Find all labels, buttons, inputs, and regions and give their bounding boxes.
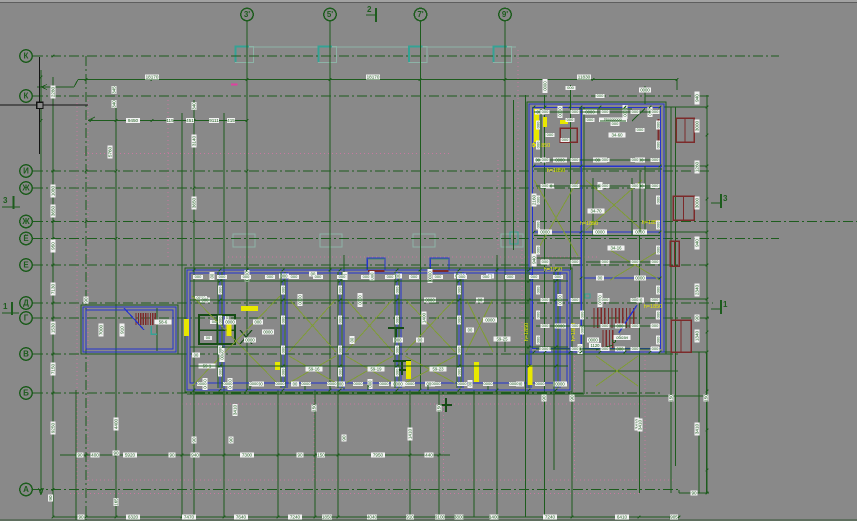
svg-text:165: 165 <box>114 498 119 506</box>
svg-text:0000: 0000 <box>354 381 364 386</box>
svg-text:000: 000 <box>218 316 223 323</box>
svg-text:58-6: 58-6 <box>159 320 168 325</box>
svg-text:000: 000 <box>395 337 403 342</box>
svg-text:0000: 0000 <box>540 229 550 234</box>
svg-text:000: 000 <box>656 246 661 253</box>
svg-text:h=1850: h=1850 <box>544 267 563 273</box>
svg-text:000: 000 <box>536 246 541 253</box>
svg-text:000: 000 <box>281 286 286 293</box>
svg-text:000: 000 <box>572 297 579 302</box>
svg-text:150: 150 <box>669 394 674 402</box>
svg-text:34-16: 34-16 <box>611 246 623 251</box>
svg-text:000: 000 <box>291 274 298 279</box>
svg-text:000: 000 <box>542 297 549 302</box>
svg-text:7640: 7640 <box>236 515 247 520</box>
svg-text:000: 000 <box>395 368 400 375</box>
svg-text:3650: 3650 <box>192 197 197 208</box>
svg-text:000: 000 <box>656 221 661 228</box>
svg-text:940: 940 <box>695 94 700 102</box>
svg-text:0000: 0000 <box>245 337 255 342</box>
svg-text:000: 000 <box>572 109 579 114</box>
svg-text:Д: Д <box>23 299 29 308</box>
svg-text:И: И <box>23 167 29 176</box>
svg-text:000: 000 <box>536 311 541 318</box>
svg-text:00: 00 <box>418 337 423 342</box>
svg-text:345: 345 <box>112 86 117 94</box>
svg-text:9100: 9100 <box>435 515 446 520</box>
svg-text:7130: 7130 <box>51 283 56 294</box>
svg-text:4400: 4400 <box>114 418 119 429</box>
svg-text:9250: 9250 <box>51 422 56 433</box>
svg-text:3410: 3410 <box>695 423 700 434</box>
svg-text:000: 000 <box>602 109 609 114</box>
svg-text:00: 00 <box>598 275 603 280</box>
svg-text:5': 5' <box>327 10 333 19</box>
svg-text:0000: 0000 <box>224 381 234 386</box>
svg-text:34-60: 34-60 <box>612 133 624 138</box>
svg-text:340: 340 <box>112 100 117 108</box>
svg-text:000: 000 <box>507 274 514 279</box>
svg-text:000: 000 <box>632 183 639 188</box>
svg-text:0000: 0000 <box>276 381 286 386</box>
svg-text:000: 000 <box>338 316 343 323</box>
svg-text:000: 000 <box>632 346 639 351</box>
svg-text:1: 1 <box>3 302 8 311</box>
svg-text:00: 00 <box>293 381 298 386</box>
svg-text:Ж: Ж <box>21 217 30 226</box>
svg-text:0000: 0000 <box>406 381 416 386</box>
svg-text:940: 940 <box>695 239 700 247</box>
svg-text:000: 000 <box>315 274 322 279</box>
svg-text:2: 2 <box>367 5 372 14</box>
svg-text:90: 90 <box>342 435 347 441</box>
svg-text:90: 90 <box>297 453 303 458</box>
svg-text:150: 150 <box>312 404 317 412</box>
svg-text:910: 910 <box>120 326 125 334</box>
svg-text:0000: 0000 <box>428 271 433 281</box>
svg-text:000: 000 <box>536 141 541 148</box>
svg-text:000: 000 <box>395 286 400 293</box>
svg-text:000: 000 <box>597 93 604 98</box>
svg-text:000: 000 <box>572 157 579 162</box>
svg-text:451: 451 <box>186 118 194 123</box>
svg-text:000: 000 <box>632 259 639 264</box>
svg-text:000: 000 <box>542 157 549 162</box>
svg-text:3000: 3000 <box>695 197 700 208</box>
svg-text:000: 000 <box>602 259 609 264</box>
svg-text:000: 000 <box>255 319 263 324</box>
svg-text:000: 000 <box>652 346 659 351</box>
svg-text:59-25: 59-25 <box>497 337 509 342</box>
svg-text:7240: 7240 <box>545 515 556 520</box>
svg-text:1410: 1410 <box>408 428 413 439</box>
svg-text:000: 000 <box>542 259 549 264</box>
svg-text:0000: 0000 <box>485 317 495 322</box>
svg-text:3: 3 <box>3 196 8 205</box>
svg-text:000: 000 <box>656 311 661 318</box>
svg-text:11830: 11830 <box>578 75 591 80</box>
svg-text:3: 3 <box>723 194 728 203</box>
svg-text:000: 000 <box>542 323 549 328</box>
svg-text:0000: 0000 <box>432 381 442 386</box>
svg-text:90: 90 <box>78 515 84 520</box>
svg-text:1400: 1400 <box>489 515 500 520</box>
svg-text:910: 910 <box>406 515 414 520</box>
svg-text:000: 000 <box>267 274 274 279</box>
svg-text:000: 000 <box>531 274 538 279</box>
svg-text:950: 950 <box>51 242 56 250</box>
svg-text:Г: Г <box>24 314 29 323</box>
svg-text:3650: 3650 <box>51 205 56 216</box>
svg-text:000: 000 <box>218 346 223 353</box>
svg-text:940: 940 <box>191 453 199 458</box>
svg-text:0000: 0000 <box>640 87 650 92</box>
svg-text:0000: 0000 <box>198 381 208 386</box>
svg-text:000: 000 <box>652 259 659 264</box>
svg-text:000: 000 <box>652 157 659 162</box>
svg-text:00: 00 <box>194 352 199 357</box>
svg-text:7470: 7470 <box>184 515 195 520</box>
svg-text:940: 940 <box>532 256 537 264</box>
svg-text:0000: 0000 <box>250 381 260 386</box>
svg-text:0000: 0000 <box>595 229 605 234</box>
svg-text:7': 7' <box>417 10 423 19</box>
svg-text:59-23: 59-23 <box>433 367 445 372</box>
svg-text:000: 000 <box>435 274 442 279</box>
svg-text:90: 90 <box>695 315 700 321</box>
svg-text:0000: 0000 <box>263 329 273 334</box>
svg-text:00: 00 <box>206 335 211 340</box>
svg-text:000: 000 <box>652 323 659 328</box>
svg-text:000: 000 <box>632 323 639 328</box>
svg-text:1260: 1260 <box>695 161 700 172</box>
svg-text:2280: 2280 <box>51 86 56 97</box>
svg-text:0000: 0000 <box>302 381 312 386</box>
svg-text:1530: 1530 <box>51 322 56 333</box>
svg-text:000: 000 <box>395 316 400 323</box>
svg-text:000: 000 <box>281 273 289 278</box>
svg-text:000: 000 <box>339 274 346 279</box>
svg-text:000: 000 <box>457 286 462 293</box>
svg-text:000: 000 <box>602 157 609 162</box>
svg-text:9': 9' <box>502 10 508 19</box>
svg-text:000: 000 <box>656 336 661 343</box>
svg-text:3': 3' <box>244 10 250 19</box>
svg-text:0000: 0000 <box>536 381 546 386</box>
svg-text:000: 000 <box>536 196 541 203</box>
svg-text:000: 000 <box>395 346 400 353</box>
svg-text:3800: 3800 <box>454 515 465 520</box>
svg-text:000: 000 <box>602 323 609 328</box>
svg-text:А: А <box>23 485 29 494</box>
svg-text:6320: 6320 <box>128 515 139 520</box>
svg-text:90: 90 <box>84 297 89 303</box>
svg-text:000: 000 <box>387 274 394 279</box>
svg-text:5760: 5760 <box>108 146 113 157</box>
svg-text:000: 000 <box>411 274 418 279</box>
svg-text:Б: Б <box>23 389 29 398</box>
svg-text:90: 90 <box>542 395 547 401</box>
svg-text:000: 000 <box>338 346 343 353</box>
svg-text:1: 1 <box>723 300 728 309</box>
svg-text:000: 000 <box>656 286 661 293</box>
svg-text:h=1850: h=1850 <box>644 304 663 310</box>
svg-text:000: 000 <box>632 109 639 114</box>
svg-text:1120: 1120 <box>590 343 600 348</box>
svg-text:00: 00 <box>468 327 473 332</box>
svg-text:1080: 1080 <box>51 185 56 196</box>
svg-text:Е: Е <box>23 261 29 270</box>
svg-text:2340: 2340 <box>695 284 700 295</box>
svg-text:h=1850: h=1850 <box>580 221 599 227</box>
svg-text:1340: 1340 <box>695 330 700 341</box>
svg-text:90: 90 <box>77 453 83 458</box>
svg-text:000: 000 <box>572 183 579 188</box>
svg-text:000: 000 <box>580 326 585 333</box>
svg-text:000: 000 <box>656 141 661 148</box>
svg-text:000: 000 <box>602 297 609 302</box>
svg-text:6410: 6410 <box>617 515 628 520</box>
svg-text:3000: 3000 <box>695 120 700 131</box>
svg-text:000: 000 <box>612 121 619 126</box>
svg-text:Ё: Ё <box>23 234 29 243</box>
svg-text:000: 000 <box>457 346 462 353</box>
svg-text:90: 90 <box>169 453 175 458</box>
svg-text:5920: 5920 <box>125 453 136 458</box>
svg-text:150: 150 <box>317 453 325 458</box>
svg-text:000: 000 <box>567 85 574 90</box>
svg-text:000: 000 <box>195 274 202 279</box>
svg-text:000: 000 <box>281 368 286 375</box>
svg-text:00: 00 <box>468 381 473 386</box>
svg-text:3410: 3410 <box>233 404 238 415</box>
svg-text:0000: 0000 <box>380 381 390 386</box>
svg-text:000: 000 <box>243 274 250 279</box>
svg-text:150: 150 <box>704 394 709 402</box>
svg-text:90: 90 <box>570 395 575 401</box>
svg-text:9450: 9450 <box>128 118 139 123</box>
svg-text:18170: 18170 <box>146 75 159 80</box>
svg-text:115: 115 <box>166 118 174 123</box>
svg-text:000: 000 <box>652 109 659 114</box>
svg-text:4040: 4040 <box>367 515 378 520</box>
svg-text:000: 000 <box>457 368 462 375</box>
svg-text:00: 00 <box>350 337 355 342</box>
svg-text:440: 440 <box>425 453 433 458</box>
svg-text:0000: 0000 <box>543 81 548 91</box>
svg-text:000: 000 <box>219 274 226 279</box>
svg-text:000: 000 <box>459 274 466 279</box>
svg-text:обозн: обозн <box>616 335 628 340</box>
svg-text:0000: 0000 <box>588 337 598 342</box>
svg-text:000: 000 <box>632 297 639 302</box>
svg-text:000: 000 <box>652 297 659 302</box>
svg-text:К: К <box>24 52 29 61</box>
svg-text:0000: 0000 <box>484 381 494 386</box>
svg-text:000: 000 <box>652 183 659 188</box>
svg-text:000: 000 <box>536 286 541 293</box>
svg-text:340: 340 <box>192 102 197 110</box>
svg-text:59-16: 59-16 <box>309 367 321 372</box>
svg-text:150: 150 <box>437 404 442 412</box>
svg-text:7950: 7950 <box>373 453 384 458</box>
svg-text:905: 905 <box>670 515 678 520</box>
svg-text:000: 000 <box>542 183 549 188</box>
svg-text:90: 90 <box>691 491 697 496</box>
svg-text:000: 000 <box>555 274 562 279</box>
svg-text:9111: 9111 <box>209 118 219 123</box>
svg-text:000: 000 <box>567 117 574 122</box>
svg-text:00: 00 <box>212 319 217 324</box>
svg-text:000: 000 <box>572 323 579 328</box>
svg-text:000: 000 <box>587 117 594 122</box>
svg-text:59-19: 59-19 <box>371 367 383 372</box>
svg-text:000: 000 <box>281 346 286 353</box>
svg-text:00: 00 <box>396 273 401 278</box>
svg-text:000: 000 <box>602 183 609 188</box>
svg-text:000: 000 <box>547 132 554 137</box>
svg-text:0000: 0000 <box>225 319 235 324</box>
svg-text:000: 000 <box>536 121 541 128</box>
svg-text:h=1850: h=1850 <box>524 323 530 342</box>
svg-text:0000: 0000 <box>555 381 565 386</box>
svg-text:000: 000 <box>562 137 569 142</box>
svg-text:3410: 3410 <box>638 419 643 430</box>
svg-text:1850: 1850 <box>322 515 333 520</box>
svg-text:000: 000 <box>218 368 223 375</box>
svg-text:000: 000 <box>536 221 541 228</box>
svg-text:415: 415 <box>227 118 235 123</box>
svg-text:000: 000 <box>542 346 549 351</box>
svg-text:7000: 7000 <box>99 324 104 335</box>
svg-text:К: К <box>24 92 29 101</box>
svg-text:h=1850: h=1850 <box>547 168 566 174</box>
svg-text:0000: 0000 <box>328 381 338 386</box>
svg-text:90: 90 <box>113 451 119 456</box>
svg-text:0000: 0000 <box>510 381 520 386</box>
svg-text:Ж: Ж <box>21 184 30 193</box>
svg-text:000: 000 <box>572 259 579 264</box>
svg-text:000: 000 <box>218 286 223 293</box>
svg-text:90: 90 <box>48 495 53 501</box>
svg-text:00: 00 <box>210 273 215 278</box>
svg-text:000: 000 <box>281 316 286 323</box>
svg-text:90: 90 <box>229 437 234 443</box>
svg-text:34-70: 34-70 <box>591 209 603 214</box>
svg-text:0000: 0000 <box>458 381 468 386</box>
svg-text:3140: 3140 <box>192 135 197 146</box>
svg-text:7150: 7150 <box>51 363 56 374</box>
svg-text:90: 90 <box>192 437 197 443</box>
svg-text:000: 000 <box>656 196 661 203</box>
svg-text:7300: 7300 <box>242 453 253 458</box>
svg-text:0000: 0000 <box>635 275 645 280</box>
svg-text:В: В <box>23 350 29 359</box>
svg-text:000: 000 <box>632 157 639 162</box>
svg-text:000: 000 <box>536 336 541 343</box>
svg-text:000: 000 <box>338 286 343 293</box>
svg-text:000: 000 <box>572 346 579 351</box>
svg-text:18170: 18170 <box>367 75 380 80</box>
svg-text:000: 000 <box>656 121 661 128</box>
svg-text:400: 400 <box>91 453 99 458</box>
svg-text:1400: 1400 <box>422 312 427 323</box>
svg-text:000: 000 <box>363 274 370 279</box>
svg-text:000: 000 <box>542 109 549 114</box>
svg-text:7240: 7240 <box>290 515 301 520</box>
svg-text:000: 000 <box>580 311 585 318</box>
svg-text:000: 000 <box>602 346 609 351</box>
svg-text:000: 000 <box>637 127 644 132</box>
svg-text:000: 000 <box>457 316 462 323</box>
svg-text:000: 000 <box>338 368 343 375</box>
svg-text:000: 000 <box>483 274 490 279</box>
